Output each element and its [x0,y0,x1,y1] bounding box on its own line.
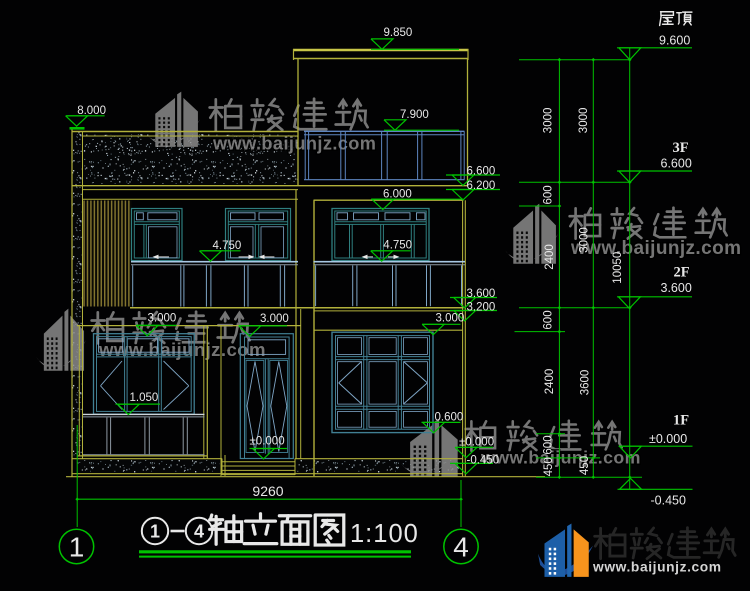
svg-text:9.850: 9.850 [384,27,413,39]
svg-text:±0.000: ±0.000 [459,437,494,449]
svg-text:2400: 2400 [544,369,556,395]
svg-text:6.200: 6.200 [467,180,496,192]
svg-text:7.900: 7.900 [400,109,429,121]
svg-text:4: 4 [194,522,204,542]
svg-text:600: 600 [543,185,555,204]
svg-text:4: 4 [453,532,469,563]
svg-text:www.baijunjz.com: www.baijunjz.com [570,238,741,259]
svg-text:450: 450 [579,456,591,475]
svg-text:3000: 3000 [578,108,590,134]
svg-text:3600: 3600 [579,370,591,396]
svg-text:3.600: 3.600 [467,288,496,300]
svg-text:3F: 3F [673,140,689,156]
svg-text:6.000: 6.000 [383,188,412,200]
svg-text:6.600: 6.600 [467,166,496,178]
svg-text:-0.450: -0.450 [651,494,686,508]
svg-text:9260: 9260 [252,483,283,499]
svg-text:2F: 2F [674,264,690,280]
svg-text:3000: 3000 [579,227,591,253]
svg-text:600: 600 [543,435,555,454]
svg-text:±0.000: ±0.000 [250,435,285,447]
svg-text:1: 1 [69,532,85,563]
svg-text:6.600: 6.600 [661,156,692,170]
svg-text:9.600: 9.600 [659,34,690,48]
svg-text:10050: 10050 [612,252,624,284]
svg-text:3000: 3000 [543,108,555,134]
svg-text:0.600: 0.600 [435,412,464,424]
svg-text:3.000: 3.000 [148,313,177,325]
svg-text:4.750: 4.750 [213,240,242,252]
svg-text:8.000: 8.000 [77,105,106,117]
svg-text:600: 600 [543,310,555,329]
svg-text:1F: 1F [673,412,689,428]
svg-text:450: 450 [543,457,555,476]
svg-text:3.000: 3.000 [260,313,289,325]
svg-text:3.600: 3.600 [661,281,692,295]
svg-text:3.000: 3.000 [436,312,465,324]
svg-text:www.baijunjz.com: www.baijunjz.com [592,560,722,575]
svg-text:1:100: 1:100 [350,520,419,548]
svg-text:-0.450: -0.450 [467,455,500,467]
svg-text:±0.000: ±0.000 [649,432,687,446]
svg-text:1: 1 [150,522,160,542]
svg-text:2400: 2400 [544,244,556,270]
svg-text:3.200: 3.200 [467,301,496,313]
svg-text:1.050: 1.050 [130,392,159,404]
svg-text:4.750: 4.750 [383,239,412,251]
